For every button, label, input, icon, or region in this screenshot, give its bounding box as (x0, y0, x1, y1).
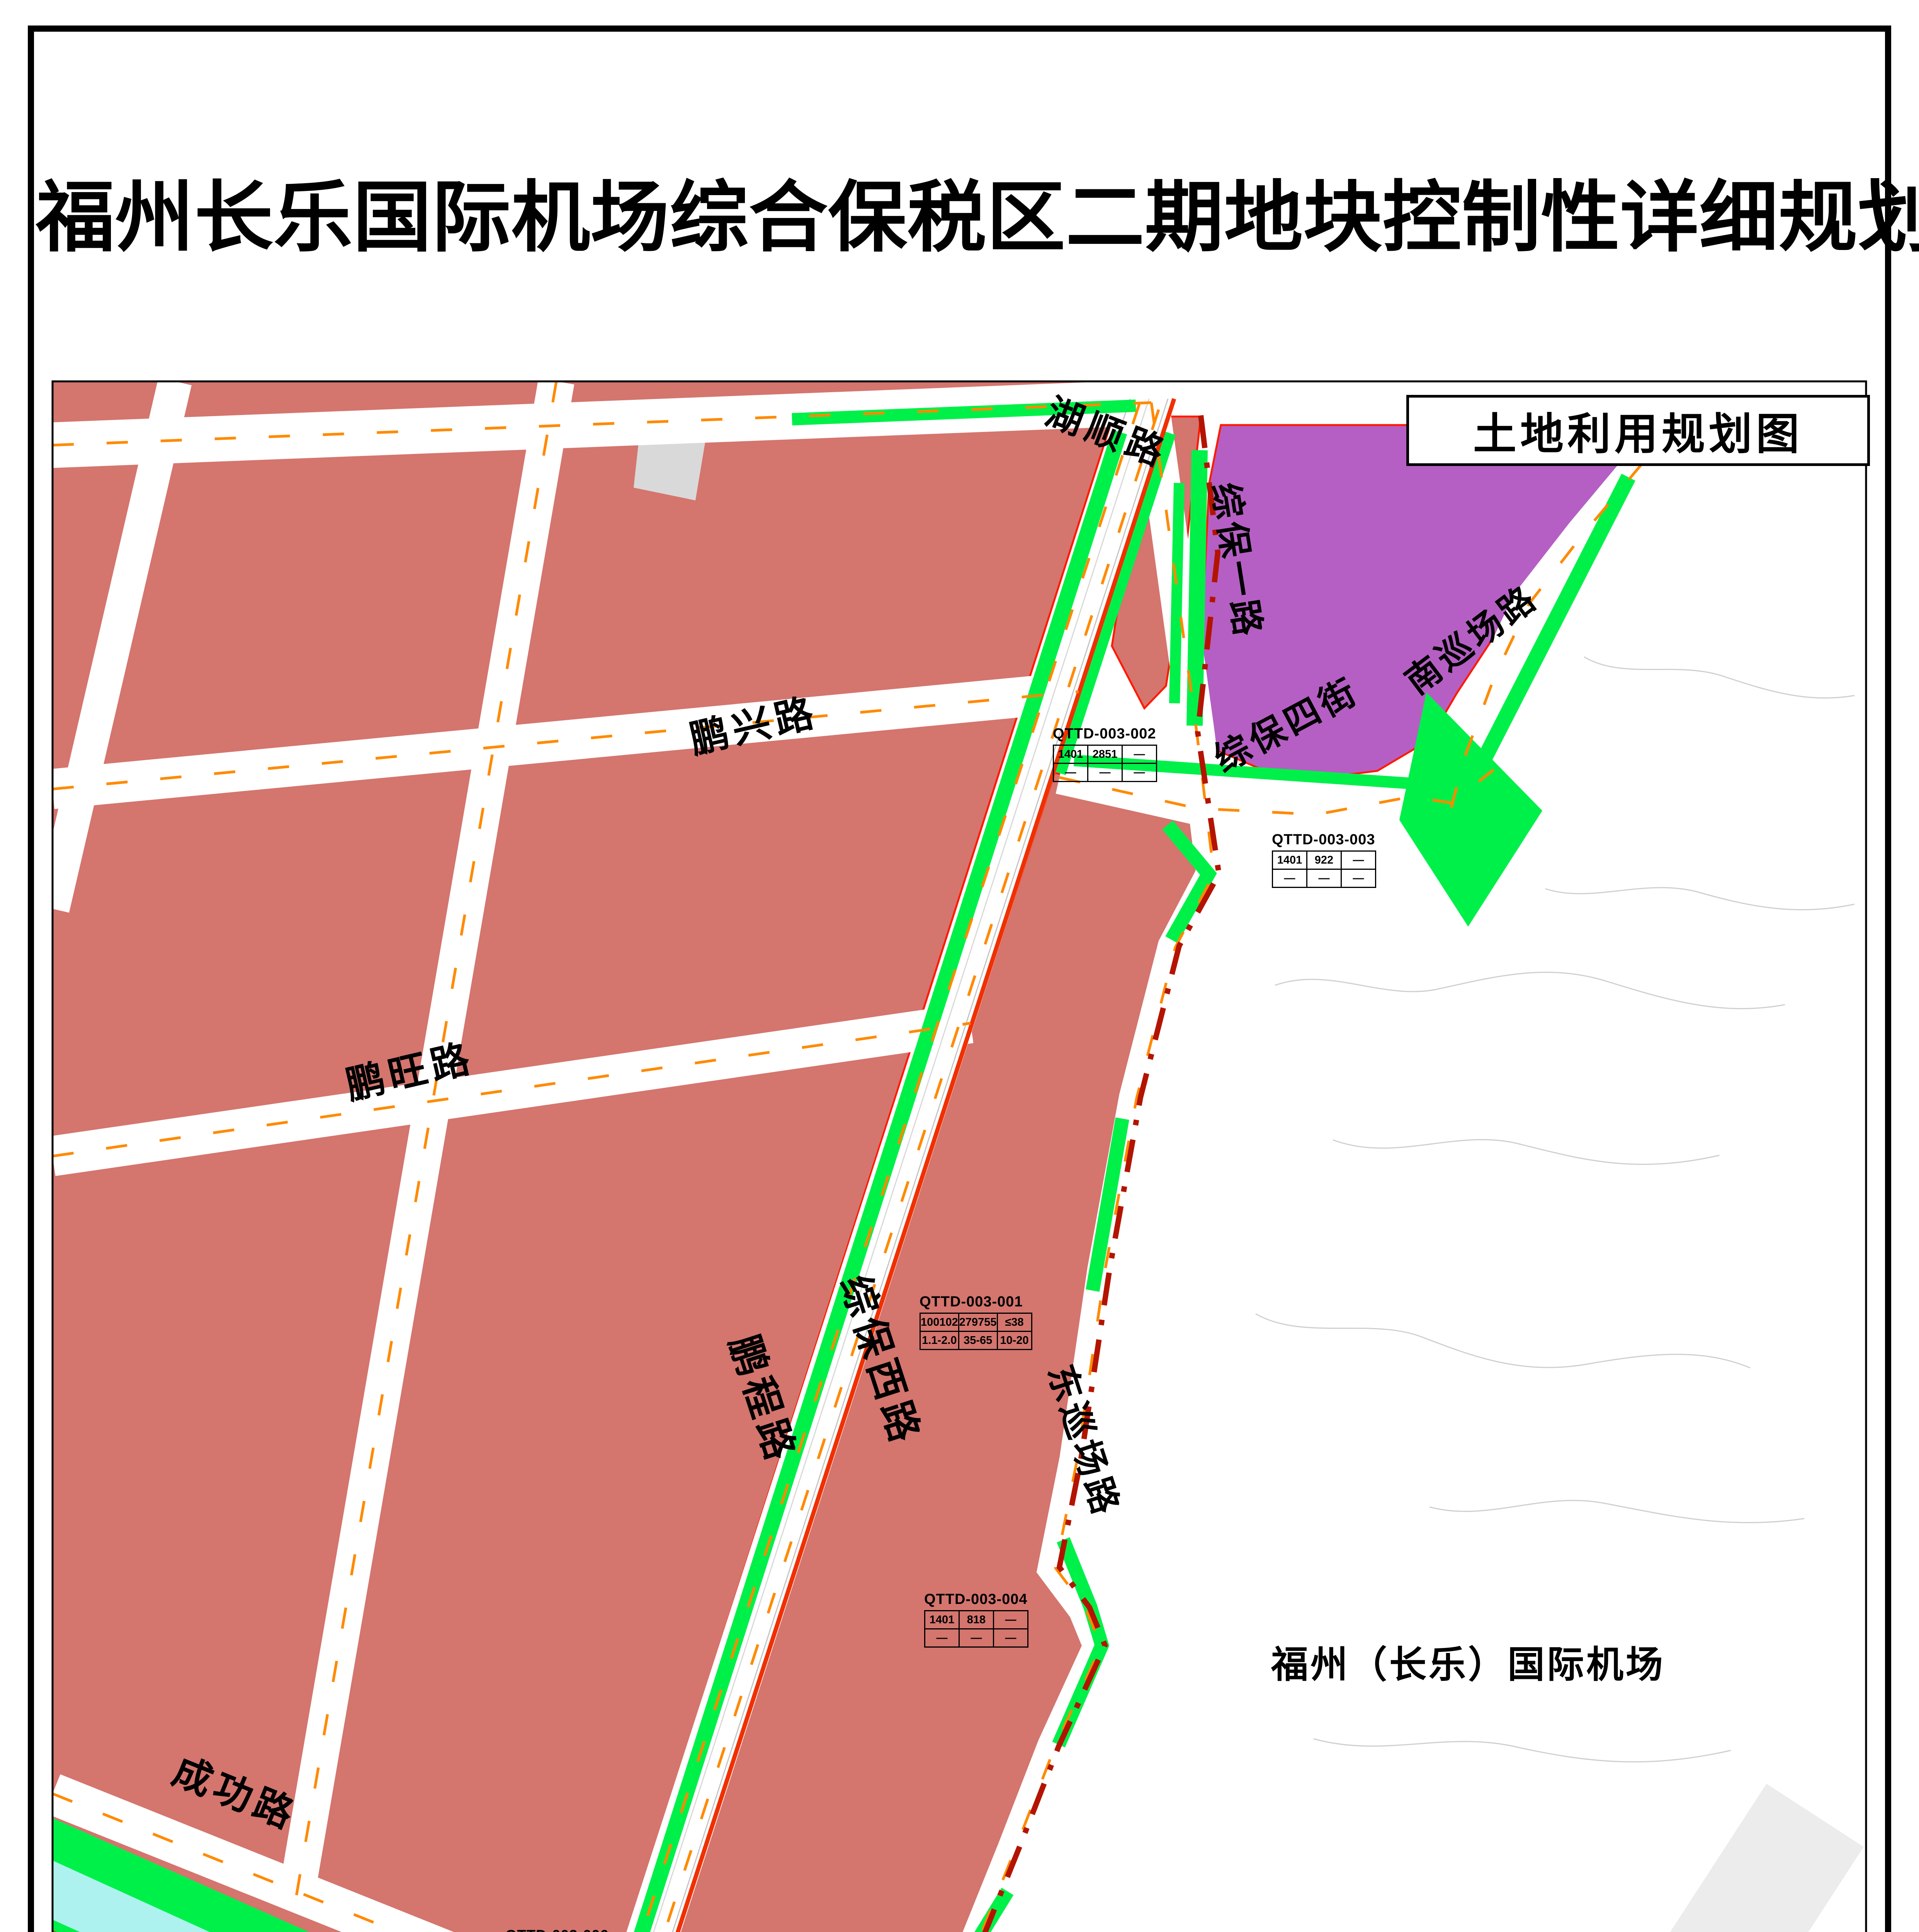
page-title: 福州长乐国际机场综合保税区二期地块控制性详细规划 (36, 155, 1883, 267)
parcel-cell: — (1088, 764, 1122, 782)
parcel-cell: 1401 (925, 1611, 959, 1629)
parcel-table: 1401818— ——— (924, 1610, 1028, 1648)
parcel-table: 1401922— ——— (1272, 850, 1376, 888)
parcel-box-002: QTTD-003-002 14012851— ——— (1053, 726, 1176, 782)
parcel-id: QTTD-003-006 (505, 1927, 629, 1932)
parcel-cell: — (994, 1629, 1028, 1647)
parcel-cell: — (1273, 869, 1307, 888)
parcel-cell: 922 (1307, 851, 1341, 869)
parcel-table: 100102279755≤38 1.1-2.035-6510-20 (920, 1313, 1032, 1350)
parcel-cell: — (959, 1629, 994, 1647)
parcel-cell: 1401 (1273, 851, 1307, 869)
parcel-cell: — (1341, 851, 1376, 869)
parcel-cell: 279755 (959, 1313, 997, 1332)
plan-sheet: { "title": "福州长乐国际机场综合保税区二期地块控制性详细规划", "… (0, 0, 1919, 1932)
parcel-table: 14012851— ——— (1053, 745, 1157, 782)
parcel-cell: 10-20 (997, 1332, 1032, 1350)
parcel-cell: — (925, 1629, 959, 1647)
airport-label: 福州（长乐）国际机场 (1271, 1634, 1665, 1688)
parcel-cell: — (1054, 764, 1088, 782)
parcel-id: QTTD-003-003 (1272, 832, 1395, 848)
parcel-cell: 2851 (1088, 745, 1122, 764)
parcel-cell: 100102 (920, 1313, 959, 1332)
parcel-box-003: QTTD-003-003 1401922— ——— (1272, 832, 1395, 888)
parcel-cell: — (994, 1611, 1028, 1629)
parcel-cell: 818 (959, 1611, 994, 1629)
parcel-cell: — (1307, 869, 1341, 888)
parcel-cell: — (1122, 745, 1157, 764)
parcel-box-001: QTTD-003-001 100102279755≤38 1.1-2.035-6… (920, 1294, 1043, 1350)
parcel-box-006: QTTD-003-006 14011281— ——— (505, 1927, 629, 1932)
parcel-cell: 1401 (1054, 745, 1088, 764)
map-inset-title: 土地利用规划图 (1406, 395, 1870, 466)
parcel-cell: 35-65 (959, 1332, 997, 1350)
parcel-box-004: QTTD-003-004 1401818— ——— (924, 1591, 1048, 1648)
parcel-id: QTTD-003-001 (920, 1294, 1043, 1310)
parcel-cell: — (1122, 764, 1157, 782)
parcel-id: QTTD-003-004 (924, 1591, 1048, 1608)
parcel-cell: — (1341, 869, 1376, 888)
parcel-cell: 1.1-2.0 (920, 1332, 959, 1350)
parcel-id: QTTD-003-002 (1053, 726, 1176, 742)
parcel-cell: ≤38 (997, 1313, 1032, 1332)
